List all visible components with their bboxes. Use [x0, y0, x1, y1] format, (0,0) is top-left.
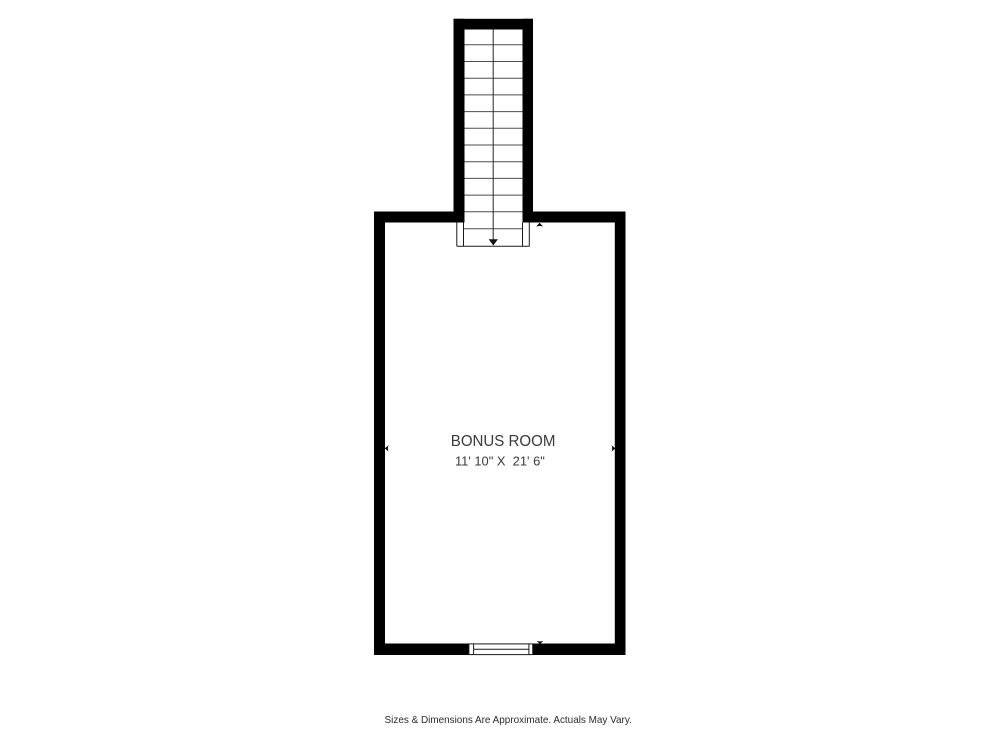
svg-text:BONUS ROOM: BONUS ROOM	[451, 433, 556, 450]
svg-text:Sizes & Dimensions Are Approxi: Sizes & Dimensions Are Approximate. Actu…	[385, 715, 632, 726]
svg-text:11' 10" X 21' 6": 11' 10" X 21' 6"	[455, 453, 545, 468]
